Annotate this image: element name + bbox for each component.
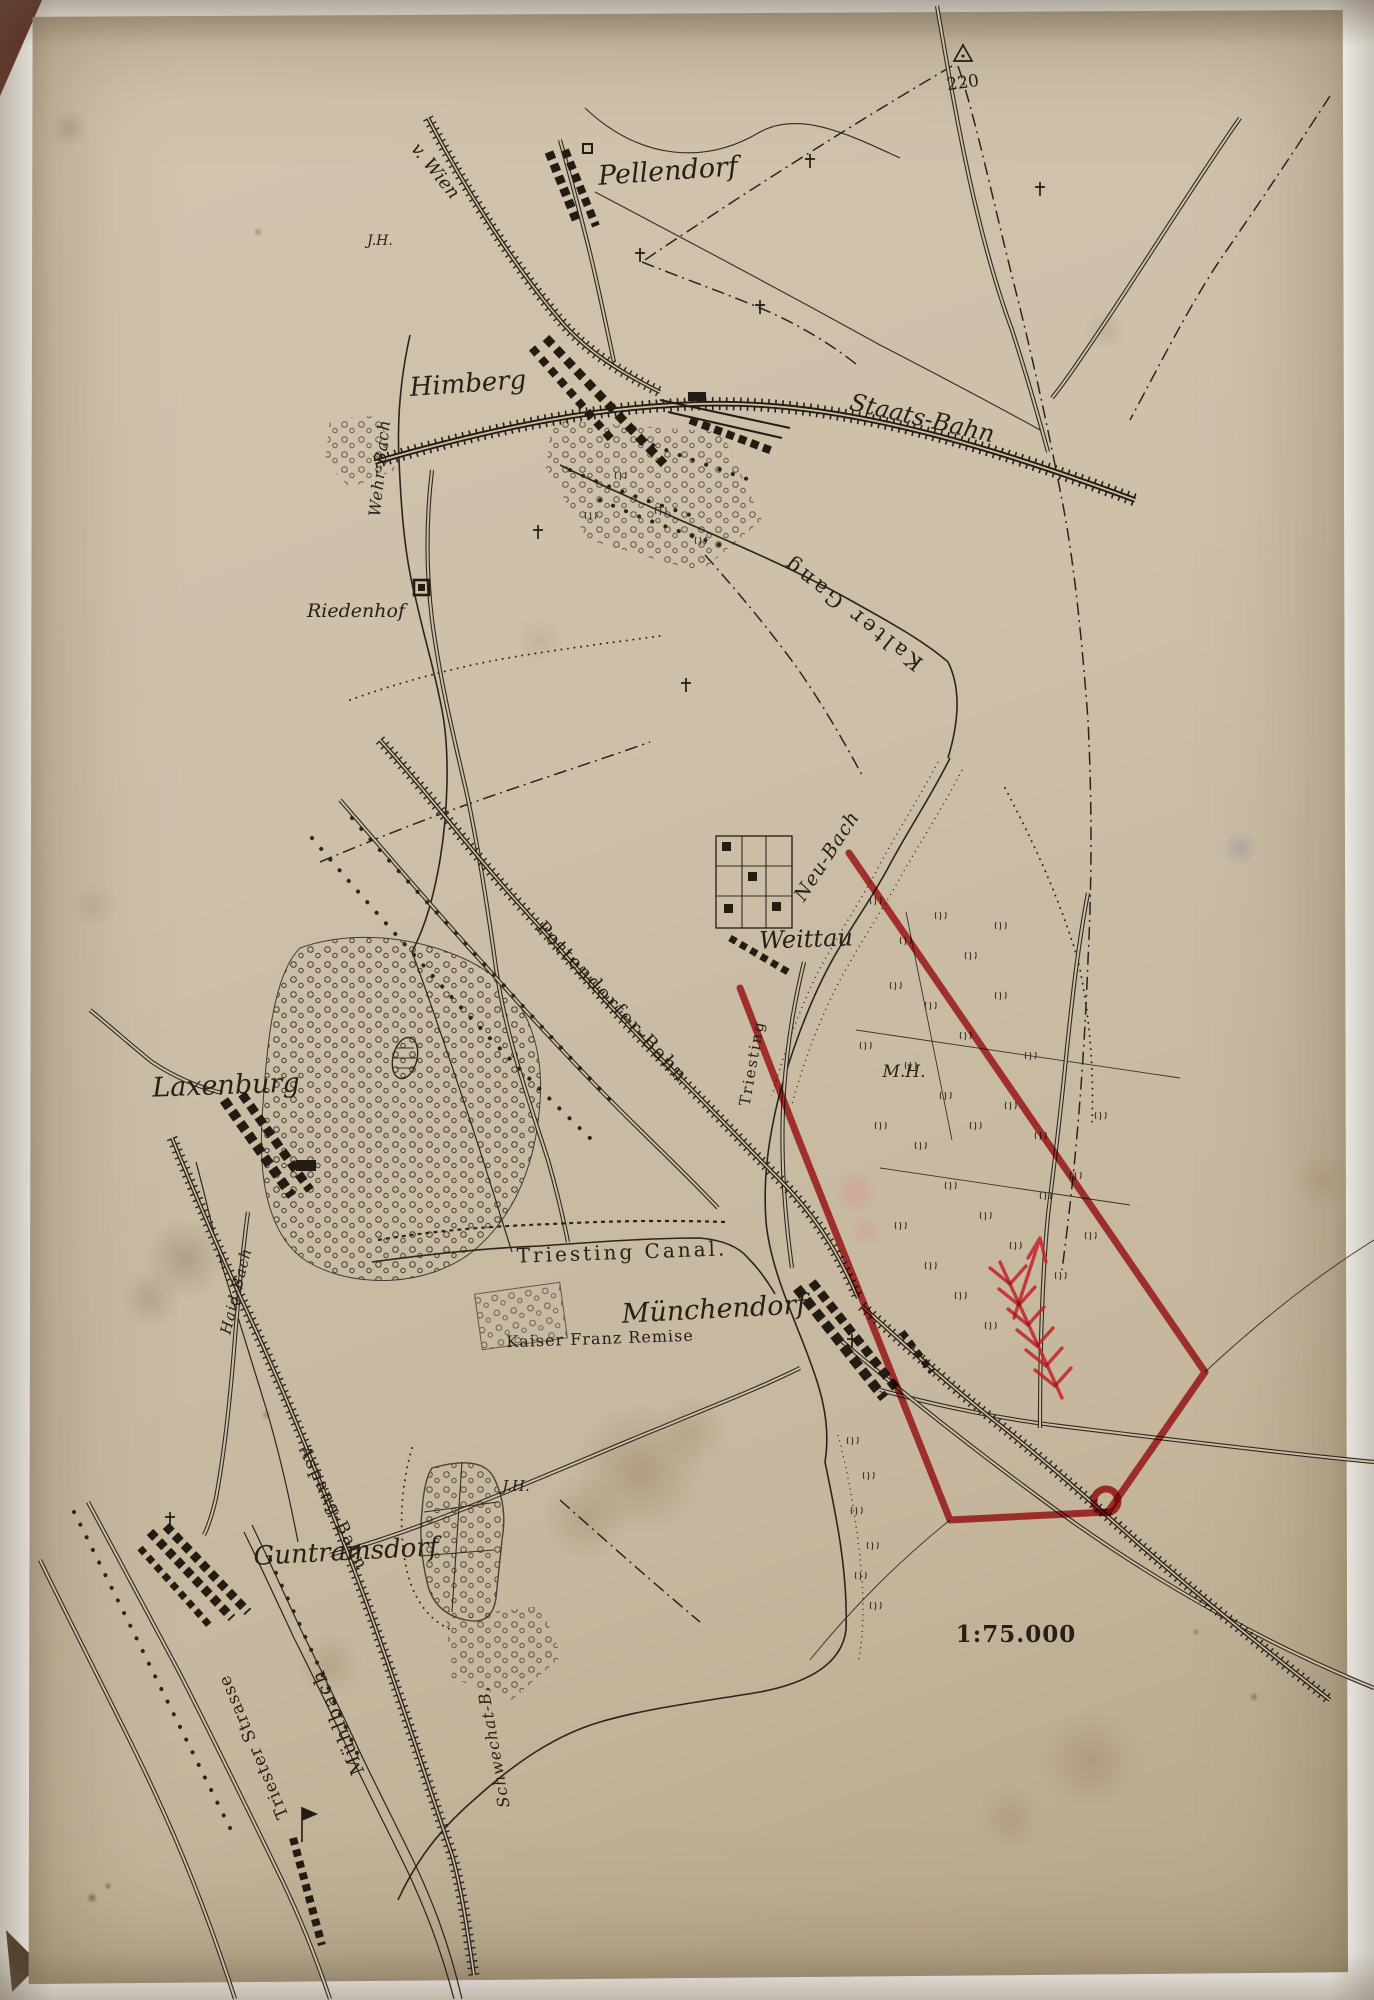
boundary-pellendorf-se — [642, 262, 856, 364]
label-triester-strasse: Triester Strasse — [215, 1672, 294, 1822]
wehr-bach-stream — [398, 335, 447, 952]
label-pottendorfer-bahn: Pottendorfer-Bahn — [532, 917, 693, 1087]
himberg-station-building — [688, 392, 706, 401]
label-muenchendorf: Münchendorf — [620, 1289, 811, 1330]
label-laxenburg: Laxenburg — [151, 1067, 300, 1103]
annotation-rectangle — [740, 853, 1205, 1520]
label-muehlbach: Mühlbach — [307, 1666, 369, 1778]
line-top-wavy — [585, 108, 900, 158]
red-annotation — [740, 853, 1205, 1520]
railway-staats-bahn — [375, 404, 1135, 500]
boundary-jh-south — [560, 1500, 700, 1622]
boundary-mid-park — [320, 742, 650, 862]
trig-point-icon — [954, 45, 972, 61]
path-riedenhof-east — [350, 636, 660, 700]
scale-label: 1:75.000 — [956, 1621, 1077, 1648]
boundary-topright — [1130, 96, 1330, 420]
field-line-4 — [1205, 1240, 1374, 1372]
label-jh-south: J.H. — [499, 1477, 529, 1495]
village-guntramsdorf — [140, 1526, 248, 1626]
line-pellendorf-se — [595, 192, 1040, 430]
label-triesting-river: Triesting — [736, 1019, 769, 1107]
minor-roads — [585, 108, 1374, 1660]
label-schwechat-b: Schwechat-B. — [473, 1685, 513, 1809]
riedenhof-farm-inner — [418, 584, 425, 591]
label-weittau: Weittau — [759, 923, 854, 954]
orchard-patch-himberg — [546, 420, 762, 572]
label-kalter-gang: Kalter Gang — [777, 550, 928, 675]
label-elevation-220: 220 — [945, 71, 980, 95]
photo-backdrop: 220 v. Wien Pellendorf J.H. Himberg Staa… — [0, 0, 1374, 2000]
village-bottom — [293, 1808, 322, 1945]
label-himberg: Himberg — [408, 365, 528, 403]
label-guntramsdorf: Guntramsdorf — [253, 1532, 444, 1572]
label-triesting-canal: Triesting Canal. — [516, 1236, 727, 1267]
field-line-5 — [810, 1520, 950, 1660]
boundary-trig-south — [958, 66, 1091, 1270]
label-riedenhof: Riedenhof — [306, 600, 408, 622]
label-pellendorf: Pellendorf — [596, 151, 743, 192]
field-line-2 — [880, 1168, 1130, 1205]
label-staats-bahn: Staats-Bahn — [847, 388, 997, 448]
map-labels: 220 v. Wien Pellendorf J.H. Himberg Staa… — [151, 71, 1077, 1822]
label-mh: M.H. — [881, 1062, 925, 1082]
annotation-arrow-sketch — [990, 1238, 1071, 1398]
label-jh-north: J.H. — [364, 233, 393, 249]
map-engraving: 220 v. Wien Pellendorf J.H. Himberg Staa… — [0, 0, 1374, 2000]
flag-marker — [302, 1808, 316, 1842]
